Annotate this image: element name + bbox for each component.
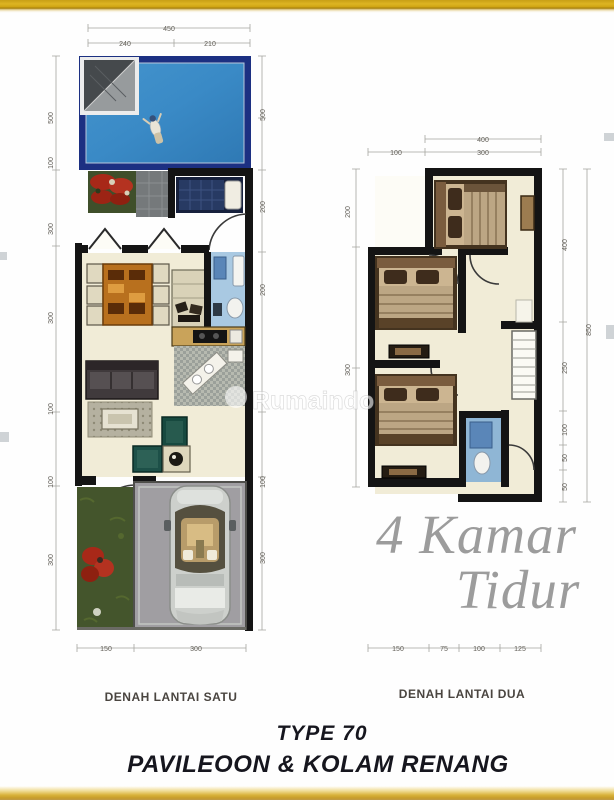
- svg-text:300: 300: [345, 364, 352, 376]
- svg-text:75: 75: [440, 646, 448, 653]
- svg-text:100: 100: [473, 646, 485, 653]
- svg-text:200: 200: [345, 206, 352, 218]
- svg-text:200: 200: [260, 284, 267, 296]
- svg-text:300: 300: [260, 552, 267, 564]
- svg-text:450: 450: [163, 26, 175, 33]
- svg-text:400: 400: [562, 239, 569, 251]
- svg-text:Rumaindo: Rumaindo: [252, 387, 374, 415]
- svg-text:500: 500: [260, 109, 267, 121]
- svg-text:240: 240: [119, 41, 131, 48]
- svg-text:850: 850: [586, 324, 593, 336]
- svg-text:4 Kamar: 4 Kamar: [376, 504, 577, 565]
- svg-text:300: 300: [48, 312, 55, 324]
- svg-text:DENAH LANTAI DUA: DENAH LANTAI DUA: [399, 687, 525, 701]
- svg-text:100: 100: [260, 476, 267, 488]
- svg-text:DENAH LANTAI SATU: DENAH LANTAI SATU: [105, 690, 238, 704]
- svg-text:250: 250: [562, 362, 569, 374]
- svg-text:100: 100: [562, 424, 569, 436]
- svg-text:TYPE 70: TYPE 70: [276, 722, 367, 745]
- svg-text:500: 500: [48, 112, 55, 124]
- svg-text:PAVILEOON & KOLAM RENANG: PAVILEOON & KOLAM RENANG: [127, 751, 509, 778]
- svg-text:150: 150: [392, 646, 404, 653]
- svg-text:125: 125: [514, 646, 526, 653]
- svg-text:50: 50: [562, 454, 569, 462]
- svg-text:200: 200: [260, 201, 267, 213]
- svg-text:100: 100: [48, 476, 55, 488]
- svg-text:300: 300: [190, 646, 202, 653]
- svg-text:50: 50: [562, 483, 569, 491]
- svg-text:100: 100: [48, 157, 55, 169]
- svg-text:210: 210: [204, 41, 216, 48]
- svg-text:300: 300: [477, 150, 489, 157]
- svg-text:Tidur: Tidur: [456, 559, 580, 620]
- svg-text:300: 300: [48, 554, 55, 566]
- svg-text:100: 100: [48, 403, 55, 415]
- svg-text:100: 100: [390, 150, 402, 157]
- svg-text:150: 150: [100, 646, 112, 653]
- svg-text:300: 300: [48, 223, 55, 235]
- svg-text:400: 400: [477, 137, 489, 144]
